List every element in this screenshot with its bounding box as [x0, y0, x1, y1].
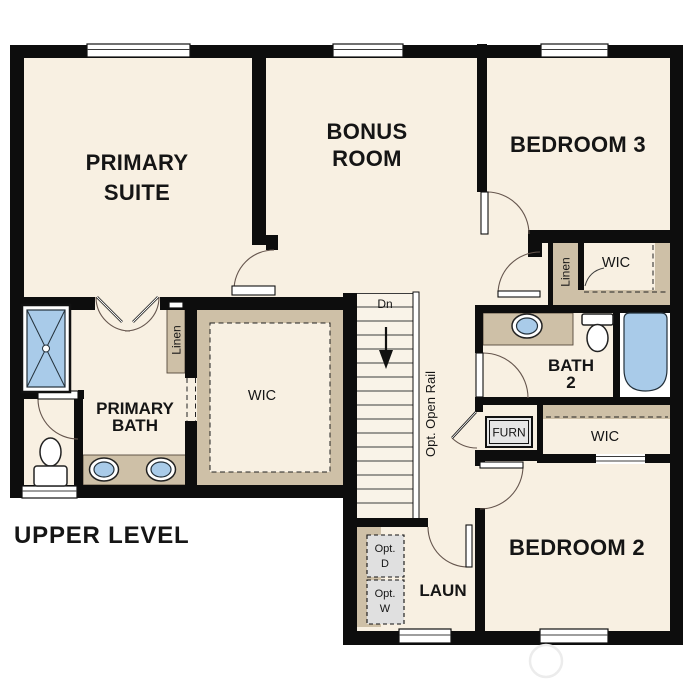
closet-bypass-opening	[596, 454, 645, 464]
window	[540, 629, 608, 643]
bedroom3-wic-shelf-south	[553, 290, 670, 307]
bedroom2-door	[480, 462, 523, 468]
stair-rail	[413, 292, 419, 519]
bedroom3-label: BEDROOM 3	[510, 132, 646, 157]
primary-suite-label-line2: SUITE	[104, 180, 170, 205]
bath2-door	[476, 353, 483, 397]
primary-bath-label-line2: BATH	[112, 416, 158, 435]
window	[541, 44, 608, 57]
opt-washer-label-line1: Opt.	[375, 588, 396, 600]
opt-dryer-label-line1: Opt.	[375, 543, 396, 555]
furnace-label: FURN	[492, 426, 525, 440]
staircase	[357, 292, 419, 519]
hall-linen-label: Linen	[559, 257, 573, 286]
opt-washer-label-line2: W	[380, 603, 391, 615]
primary-wic-label: WIC	[248, 388, 276, 404]
page-title: UPPER LEVEL	[14, 522, 190, 549]
laundry-label: LAUN	[419, 581, 466, 600]
window	[22, 486, 77, 498]
floor-plan: PRIMARY SUITE BONUS ROOM BEDROOM 3 BEDRO…	[0, 0, 687, 687]
bedroom3-wic-shelf-east	[655, 243, 670, 290]
linen-opening	[169, 302, 183, 308]
bonus-room-label-line2: ROOM	[332, 146, 402, 171]
window	[333, 44, 403, 57]
shower	[22, 305, 70, 392]
watermark-circle	[530, 645, 562, 677]
laundry-door	[466, 525, 472, 567]
window	[399, 629, 451, 643]
floor-plan-page: PRIMARY SUITE BONUS ROOM BEDROOM 3 BEDRO…	[0, 0, 687, 687]
primary-linen-label: Linen	[170, 325, 184, 354]
bedroom3-wic-label: WIC	[602, 255, 630, 271]
opt-dryer-label-line2: D	[381, 558, 389, 570]
bath2-label-line2: 2	[566, 373, 575, 392]
bedroom3-wic-door	[498, 291, 540, 297]
window	[87, 44, 190, 57]
bedroom3-door	[481, 192, 488, 234]
stairs-down-label: Dn	[377, 297, 392, 311]
bonus-room-label-line1: BONUS	[327, 119, 408, 144]
opt-washer-box	[367, 580, 404, 624]
primary-suite-label-line1: PRIMARY	[86, 150, 189, 175]
open-rail-label: Opt. Open Rail	[423, 371, 438, 457]
bathtub	[624, 313, 667, 391]
opt-dryer-box	[367, 535, 404, 577]
bedroom2-label: BEDROOM 2	[509, 535, 645, 560]
bedroom2-wic-label: WIC	[591, 429, 619, 445]
bath2-sink	[512, 314, 542, 338]
primary-suite-door	[232, 286, 275, 295]
